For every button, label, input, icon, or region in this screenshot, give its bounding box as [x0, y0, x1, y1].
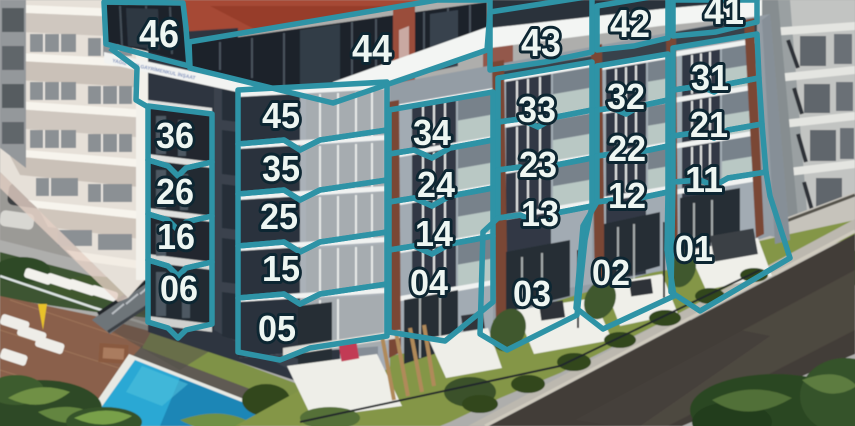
svg-text:32: 32	[607, 76, 645, 117]
svg-text:12: 12	[608, 175, 646, 216]
svg-text:25: 25	[260, 196, 298, 237]
svg-text:42: 42	[610, 3, 650, 46]
svg-text:44: 44	[352, 28, 392, 71]
svg-text:24: 24	[417, 164, 455, 205]
svg-text:21: 21	[690, 104, 728, 145]
svg-text:14: 14	[415, 213, 453, 254]
svg-text:13: 13	[521, 193, 559, 234]
svg-text:23: 23	[519, 144, 557, 185]
svg-text:41: 41	[704, 0, 744, 33]
svg-text:11: 11	[685, 159, 723, 200]
svg-text:04: 04	[410, 262, 448, 303]
svg-text:06: 06	[160, 268, 198, 309]
svg-text:46: 46	[139, 13, 179, 56]
svg-text:35: 35	[262, 148, 300, 189]
svg-text:45: 45	[262, 95, 300, 136]
svg-text:36: 36	[156, 115, 194, 156]
svg-text:01: 01	[675, 228, 713, 269]
svg-text:43: 43	[521, 22, 561, 65]
svg-text:02: 02	[592, 252, 630, 293]
svg-text:03: 03	[513, 273, 551, 314]
svg-text:33: 33	[518, 89, 556, 130]
svg-text:15: 15	[262, 248, 300, 289]
svg-text:26: 26	[156, 171, 194, 212]
svg-text:05: 05	[258, 308, 296, 349]
svg-text:16: 16	[157, 216, 195, 257]
svg-text:22: 22	[608, 128, 646, 169]
svg-text:34: 34	[413, 112, 451, 153]
svg-text:31: 31	[691, 57, 729, 98]
